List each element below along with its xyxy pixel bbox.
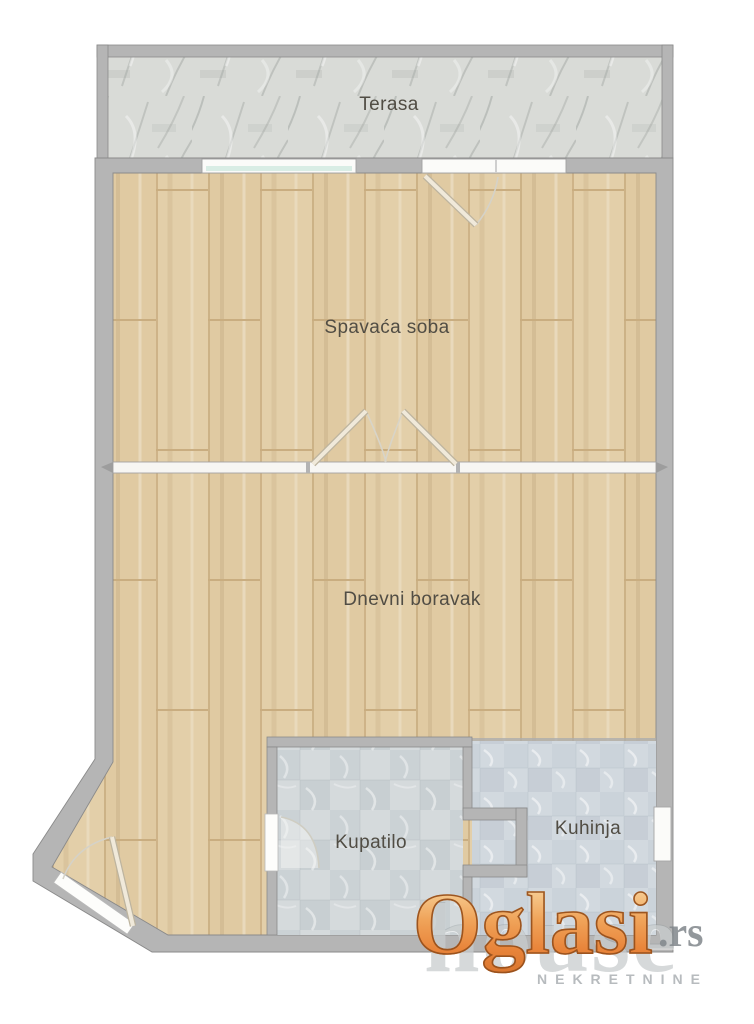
room-label-terasa: Terasa xyxy=(359,94,418,115)
terrace-wall-left xyxy=(97,45,108,158)
room-label-dnevni-boravak: Dnevni boravak xyxy=(343,589,481,610)
kitchen-floor-transition xyxy=(472,738,656,741)
watermark-brand-logo: Oglasi xyxy=(413,874,653,975)
floor-plan-page: Terasa Spavaća soba Dnevni boravak Kupat… xyxy=(0,0,754,1024)
bathroom-wall-top xyxy=(267,737,472,747)
terrace-wall-top xyxy=(97,45,673,57)
watermark-brand-suffix: .rs xyxy=(658,909,704,957)
room-label-spavaca-soba: Spavaća soba xyxy=(324,317,449,338)
room-label-kuhinja: Kuhinja xyxy=(555,818,621,839)
partition-wall xyxy=(101,462,668,473)
terrace-wall-right xyxy=(662,45,673,158)
utility-niche-floor xyxy=(472,820,516,865)
floor-plan-svg: Terasa Spavaća soba Dnevni boravak Kupat… xyxy=(0,0,754,1024)
bathroom-wall-right-upper xyxy=(463,747,472,810)
bedroom-window xyxy=(202,159,356,173)
room-label-kupatilo: Kupatilo xyxy=(335,832,407,853)
kitchen-window xyxy=(654,807,671,861)
